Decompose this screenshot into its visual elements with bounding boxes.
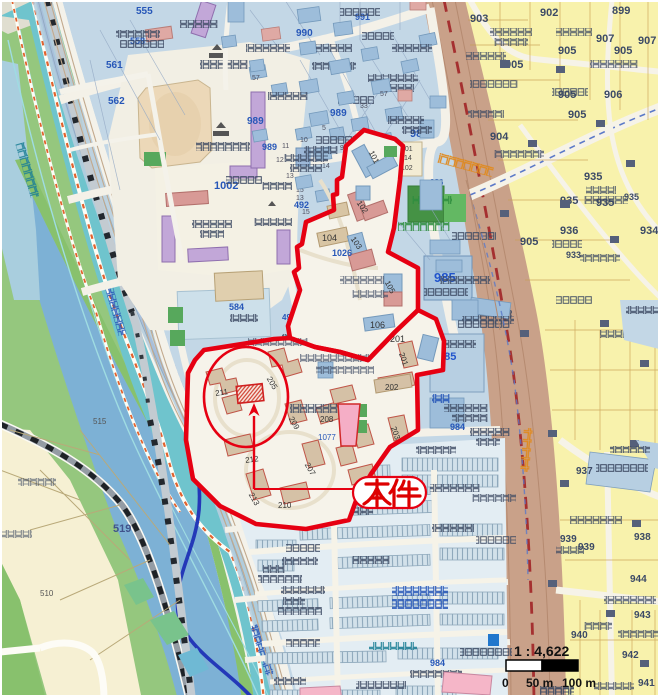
svg-text:515: 515 xyxy=(93,417,107,426)
svg-text:584: 584 xyxy=(229,302,244,312)
svg-text:907: 907 xyxy=(638,35,656,47)
svg-text:942: 942 xyxy=(622,650,639,661)
svg-text:935: 935 xyxy=(584,171,602,183)
svg-text:1077: 1077 xyxy=(318,433,336,442)
svg-text:1026: 1026 xyxy=(332,248,352,258)
svg-text:210: 210 xyxy=(278,501,292,510)
svg-text:208: 208 xyxy=(320,415,334,424)
svg-text:100 m: 100 m xyxy=(562,676,596,690)
svg-text:11: 11 xyxy=(282,143,289,150)
svg-text:33: 33 xyxy=(360,103,368,110)
svg-text:104: 104 xyxy=(322,233,337,243)
svg-text:905: 905 xyxy=(568,109,586,121)
svg-text:940: 940 xyxy=(571,630,588,641)
svg-text:57: 57 xyxy=(380,91,388,98)
svg-text:902: 902 xyxy=(540,7,558,19)
svg-text:562: 562 xyxy=(108,96,125,107)
svg-text:990: 990 xyxy=(296,28,313,39)
svg-text:905: 905 xyxy=(520,236,538,248)
svg-text:905: 905 xyxy=(558,45,576,57)
svg-text:13: 13 xyxy=(286,173,294,180)
svg-text:14: 14 xyxy=(404,155,412,162)
svg-text:934: 934 xyxy=(640,225,659,237)
svg-text:50 m: 50 m xyxy=(526,676,553,690)
svg-text:5: 5 xyxy=(322,125,326,132)
svg-text:905: 905 xyxy=(614,45,632,57)
svg-text:519: 519 xyxy=(113,523,131,535)
svg-text:211: 211 xyxy=(215,387,229,398)
svg-text:10: 10 xyxy=(300,137,308,144)
svg-text:943: 943 xyxy=(634,610,651,621)
svg-text:510: 510 xyxy=(40,589,54,598)
svg-text:989: 989 xyxy=(330,108,347,119)
svg-text:904: 904 xyxy=(490,131,509,143)
svg-text:555: 555 xyxy=(136,6,153,17)
svg-text:57: 57 xyxy=(252,75,260,82)
svg-text:938: 938 xyxy=(634,532,651,543)
svg-text:984: 984 xyxy=(430,658,445,668)
svg-text:941: 941 xyxy=(638,678,655,689)
svg-text:906: 906 xyxy=(604,89,622,101)
svg-text:13: 13 xyxy=(296,195,304,202)
svg-text:937: 937 xyxy=(576,466,593,477)
svg-text:989: 989 xyxy=(247,116,264,127)
svg-text:212: 212 xyxy=(245,454,260,465)
svg-text:933: 933 xyxy=(566,250,581,260)
svg-text:106: 106 xyxy=(370,320,385,330)
svg-text:14: 14 xyxy=(322,163,330,170)
svg-text:0: 0 xyxy=(502,676,509,690)
svg-text:15: 15 xyxy=(302,209,310,216)
svg-text:944: 944 xyxy=(630,574,647,585)
svg-text:202: 202 xyxy=(385,383,399,392)
svg-text:1 : 4,622: 1 : 4,622 xyxy=(514,643,569,659)
svg-text:984: 984 xyxy=(450,422,465,432)
svg-text:561: 561 xyxy=(106,60,123,71)
svg-text:939: 939 xyxy=(560,534,577,545)
svg-text:903: 903 xyxy=(470,13,488,25)
svg-text:936: 936 xyxy=(560,225,578,237)
svg-text:989: 989 xyxy=(262,142,277,152)
svg-text:907: 907 xyxy=(596,33,614,45)
svg-text:899: 899 xyxy=(612,5,630,17)
svg-text:12: 12 xyxy=(276,157,284,164)
